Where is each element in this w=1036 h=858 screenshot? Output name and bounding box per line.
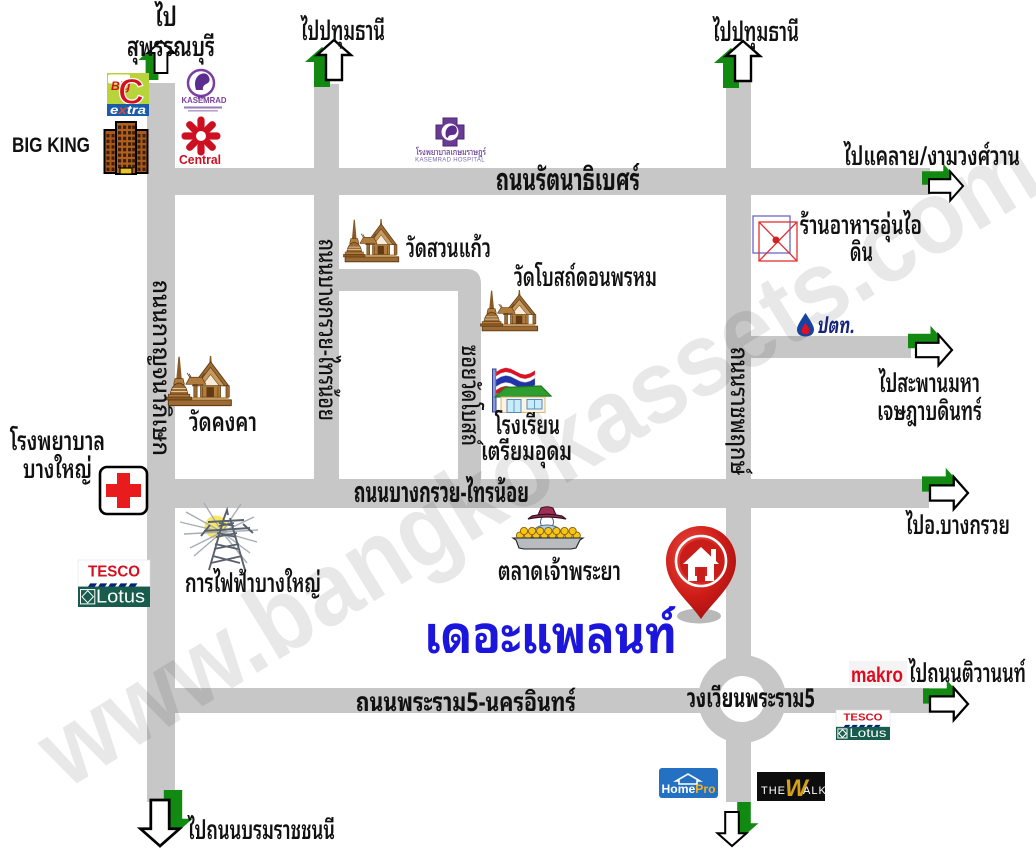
svg-text:Lotus: Lotus (849, 728, 886, 740)
svg-text:makro: makro (851, 664, 903, 687)
svg-text:THE: THE (761, 785, 786, 797)
svg-text:HomePro: HomePro (662, 784, 716, 796)
svg-text:KASEMRAD HOSPITAL: KASEMRAD HOSPITAL (415, 158, 485, 164)
svg-text:Central: Central (179, 152, 221, 167)
svg-text:extra: extra (110, 103, 146, 117)
svg-text:BIG KING: BIG KING (12, 134, 90, 157)
svg-text:TESCO: TESCO (844, 713, 883, 724)
svg-text:KASEMRAD: KASEMRAD (182, 95, 227, 105)
svg-text:Lotus: Lotus (96, 587, 145, 607)
svg-text:ALK: ALK (803, 785, 827, 797)
svg-text:TESCO: TESCO (88, 564, 140, 581)
